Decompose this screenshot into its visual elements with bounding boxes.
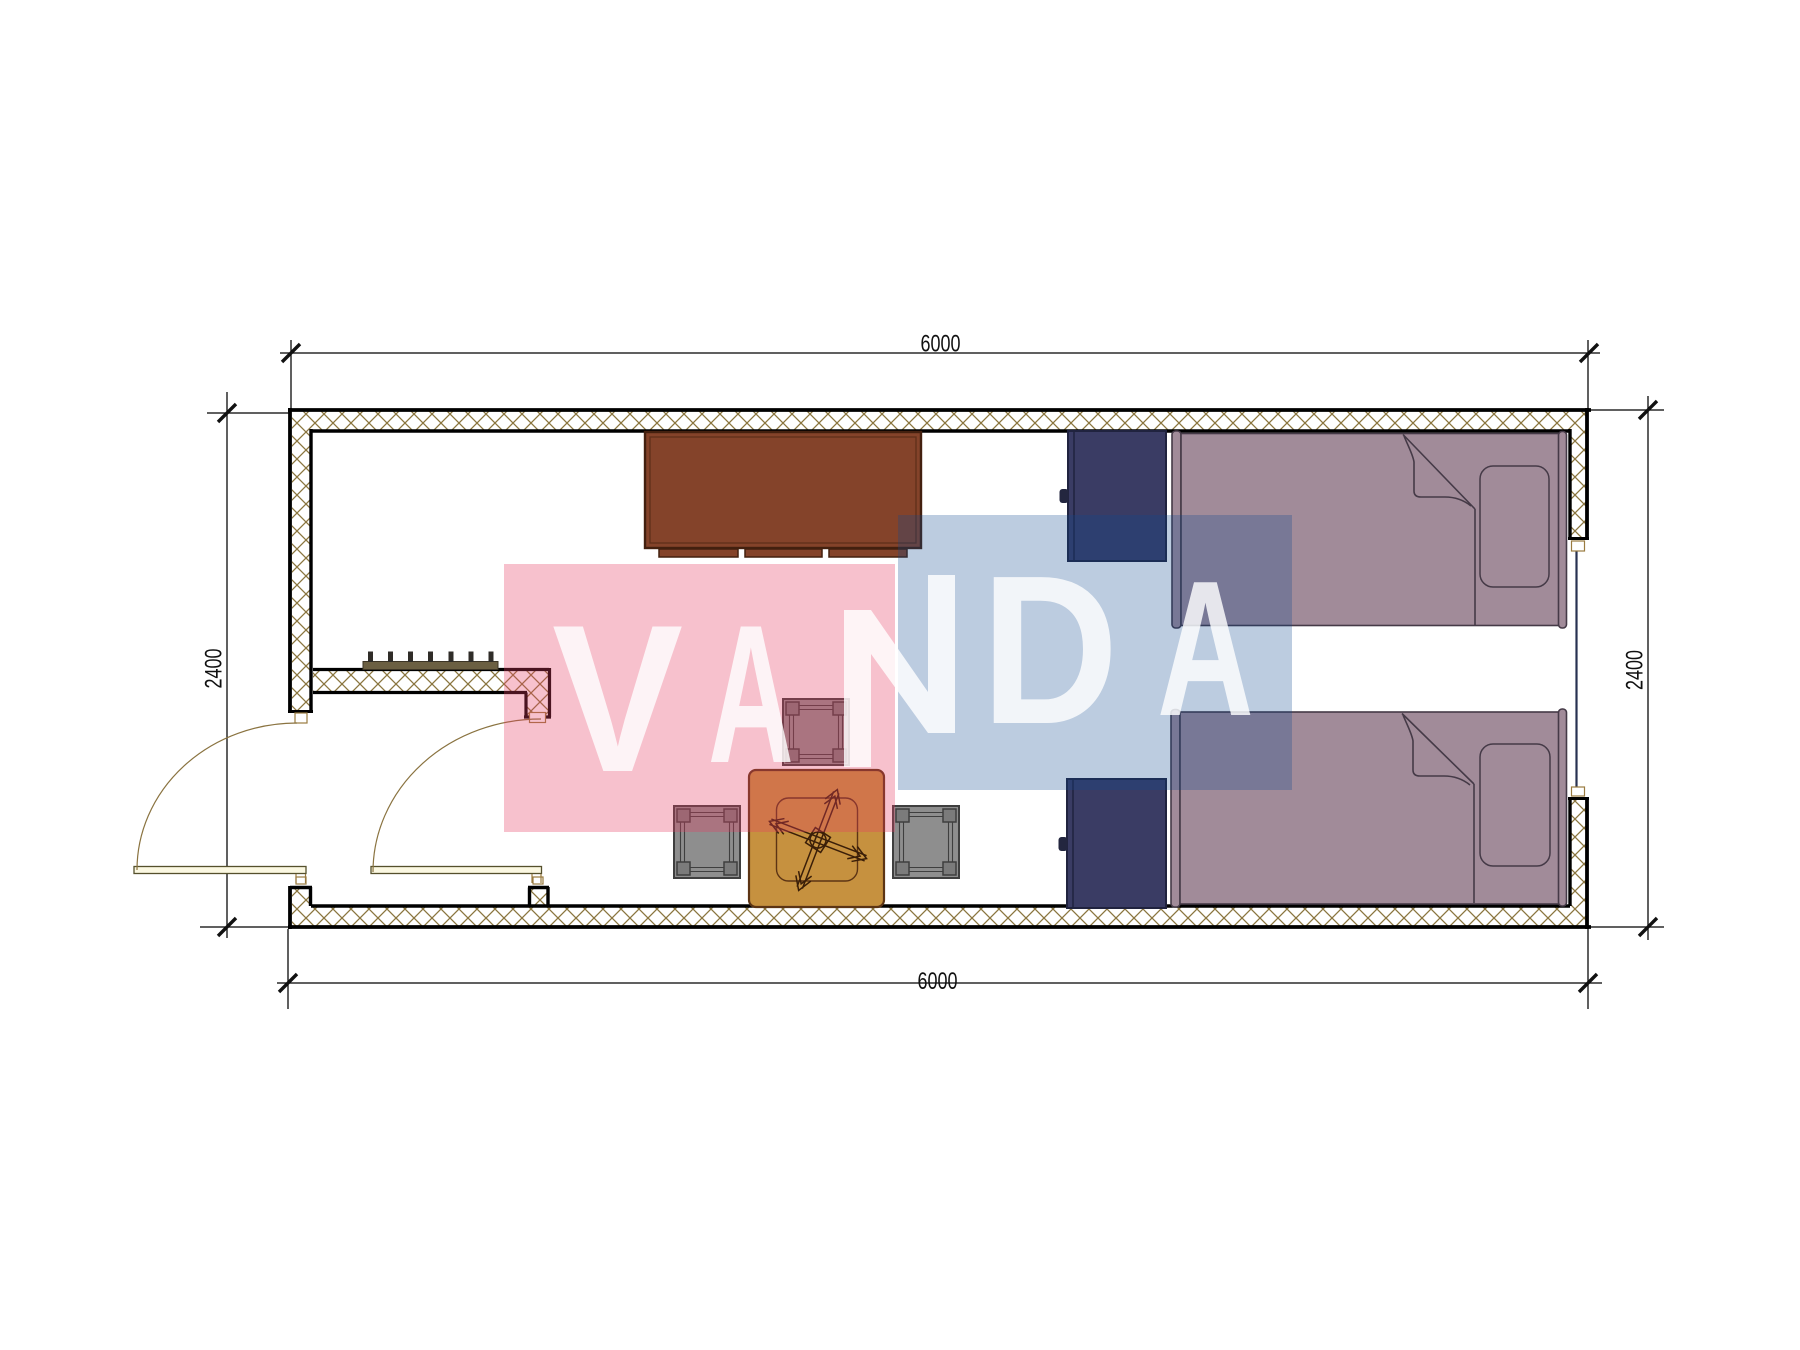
svg-text:D: D — [981, 532, 1119, 769]
svg-text:6000: 6000 — [917, 969, 957, 995]
svg-text:6000: 6000 — [920, 331, 960, 357]
svg-text:2400: 2400 — [201, 648, 227, 688]
svg-text:V: V — [552, 582, 683, 816]
svg-text:A: A — [1157, 542, 1254, 757]
svg-text:2400: 2400 — [1622, 650, 1648, 690]
svg-text:A: A — [708, 585, 794, 804]
